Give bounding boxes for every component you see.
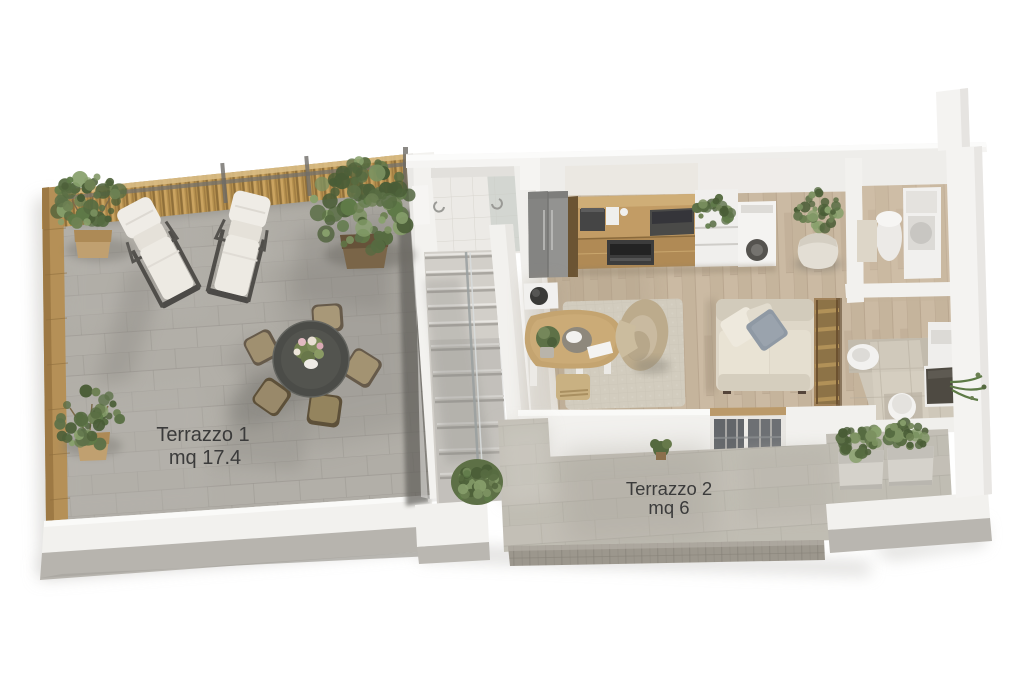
svg-text:Terrazzo 1: Terrazzo 1 (156, 424, 249, 446)
svg-text:Terrazzo 2: Terrazzo 2 (626, 478, 712, 499)
svg-text:mq 6: mq 6 (648, 497, 689, 518)
svg-text:mq 17.4: mq 17.4 (169, 447, 241, 469)
